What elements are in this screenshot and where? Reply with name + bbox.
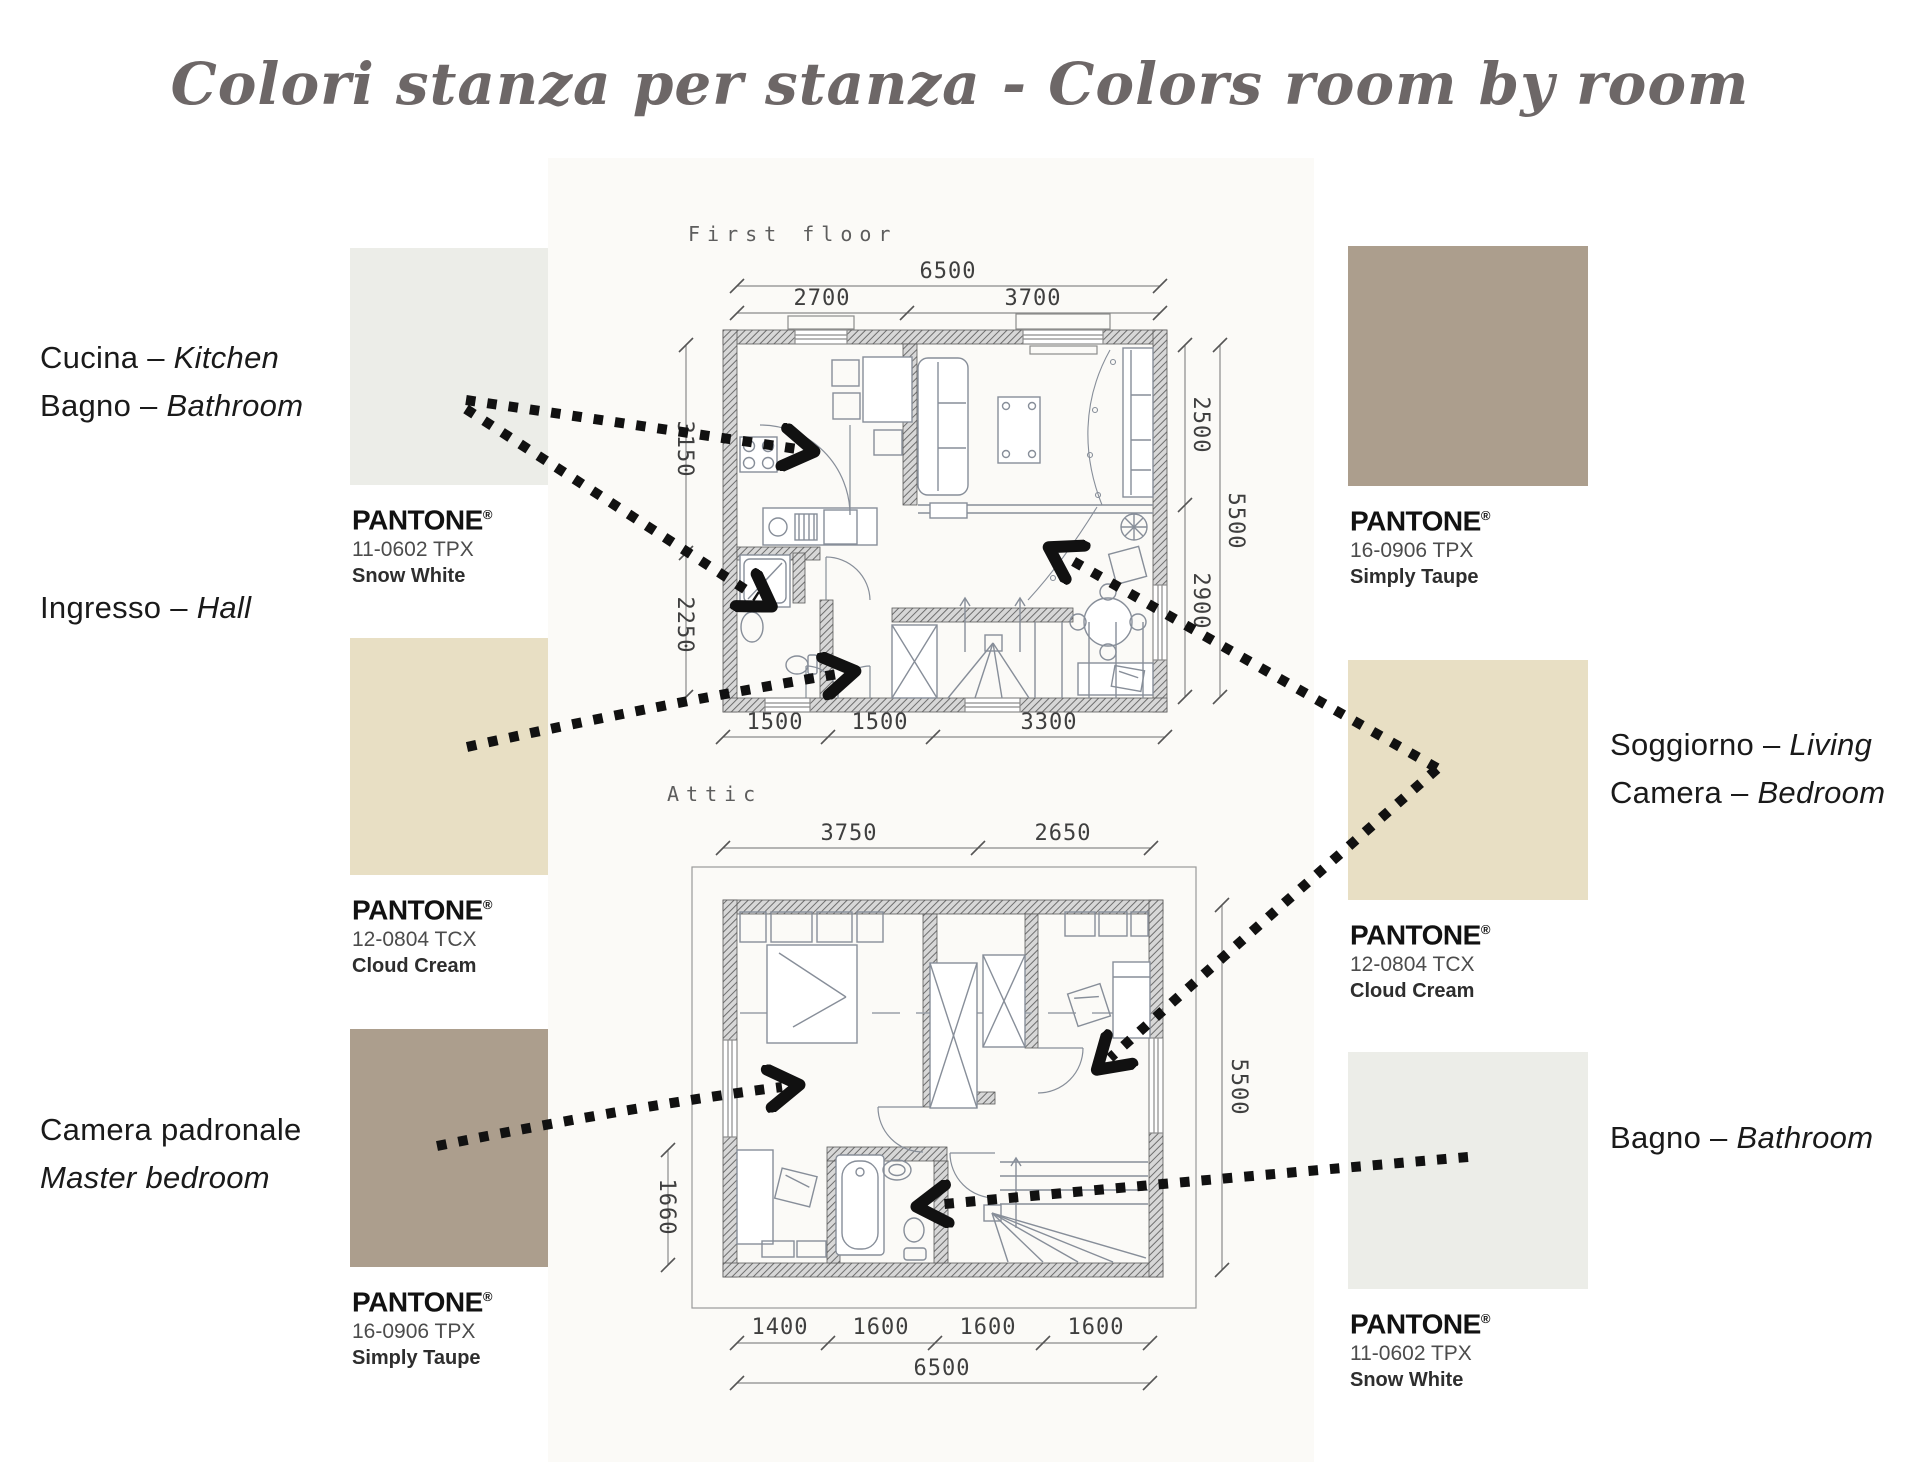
pantone-brand: PANTONE®: [1350, 1304, 1588, 1339]
page-title: Colori stanza per stanza - Colors room b…: [0, 50, 1920, 118]
annotation-arrows: [437, 400, 1468, 1205]
pantone-code: 11-0602 TPX: [352, 538, 588, 562]
dim-attic-bottom-3: 1600: [960, 1315, 1017, 1340]
first-floor-windows: [765, 314, 1167, 712]
label-living-bedroom: Soggiorno – Living Camera – Bedroom: [1610, 721, 1885, 817]
pantone-name: Snow White: [1350, 1368, 1588, 1392]
dim-first-right-total: 5500: [1223, 493, 1248, 550]
color-chip-snow-white: [350, 248, 588, 485]
dim-attic-right: 5500: [1226, 1059, 1251, 1116]
dimension-ticks: [679, 279, 1227, 744]
label-bathroom-attic: Bagno – Bathroom: [1610, 1114, 1873, 1162]
swatch-card-simply-taupe-left: PANTONE® 16-0906 TPX Simply Taupe: [350, 1029, 588, 1370]
label-line: Bagno – Bathroom: [1610, 1114, 1873, 1162]
dimension-ticks: [661, 841, 1229, 1390]
chair-icon: [775, 1168, 817, 1207]
shelves-icon: [1065, 912, 1148, 936]
color-chip-simply-taupe: [350, 1029, 588, 1267]
pantone-name: Cloud Cream: [1350, 979, 1588, 1003]
color-chip-cloud-cream: [350, 638, 588, 875]
attic-furniture: [737, 912, 1150, 1262]
label-line: Camera – Bedroom: [1610, 769, 1885, 817]
chair-icon: [1068, 984, 1111, 1027]
headboard-shelves-icon: [740, 912, 883, 942]
label-line: Master bedroom: [40, 1154, 302, 1202]
curtain-arc: [1028, 350, 1116, 600]
pantone-brand: PANTONE®: [352, 500, 588, 535]
dim-first-left-upper: 3150: [672, 421, 697, 478]
sideboard-icon: [918, 503, 1153, 518]
dim-first-bottom-1: 1500: [747, 710, 804, 735]
stairs-first-floor: [892, 598, 1143, 698]
dim-attic-total: 6500: [914, 1356, 971, 1381]
pantone-code: 11-0602 TPX: [1350, 1342, 1588, 1366]
dim-attic-bottom-2: 1600: [853, 1315, 910, 1340]
pantone-code: 12-0804 TCX: [352, 928, 588, 952]
attic-plan: Attic 3750 2650 1660 5500 1400 1600 1600…: [654, 782, 1251, 1390]
attic-walls: [723, 900, 1163, 1277]
double-bed-icon: [767, 945, 857, 1043]
dim-attic-top-1: 3750: [821, 821, 878, 846]
chair-icon: [1109, 546, 1147, 584]
swatch-card-snow-white-right: PANTONE® 11-0602 TPX Snow White: [1348, 1052, 1588, 1392]
attic-roof-outline: [692, 867, 1196, 1308]
pantone-brand: PANTONE®: [1350, 501, 1588, 536]
label-kitchen-bathroom: Cucina – Kitchen Bagno – Bathroom: [40, 334, 303, 430]
kitchen-counter-icon: [763, 508, 877, 545]
label-line: Cucina – Kitchen: [40, 334, 303, 382]
sofa-icon: [918, 358, 968, 495]
color-chip-snow-white: [1348, 1052, 1588, 1289]
pantone-code: 16-0906 TPX: [352, 1320, 588, 1344]
attic-windows: [723, 1038, 1163, 1137]
attic-label: Attic: [667, 782, 762, 806]
dim-attic-bottom-4: 1600: [1068, 1315, 1125, 1340]
first-floor-dimension-lines: [686, 286, 1220, 737]
dim-first-right-lower: 2900: [1188, 573, 1213, 630]
color-chip-simply-taupe: [1348, 246, 1588, 486]
dim-attic-left: 1660: [654, 1179, 679, 1236]
sink-icon: [883, 1160, 911, 1180]
first-floor-plan: First floor 6500 2700 3700 3150 2250 250…: [672, 222, 1248, 744]
dim-attic-top-2: 2650: [1035, 821, 1092, 846]
label-hall: Ingresso – Hall: [40, 584, 251, 632]
pantone-brand: PANTONE®: [1350, 915, 1588, 950]
swatch-card-snow-white-left: PANTONE® 11-0602 TPX Snow White: [350, 248, 588, 588]
pantone-name: Simply Taupe: [1350, 565, 1588, 589]
shower-icon: [740, 555, 790, 607]
label-line: Bagno – Bathroom: [40, 382, 303, 430]
stairs-attic: [984, 1158, 1148, 1262]
plant-icon: [1121, 514, 1147, 540]
label-line: Ingresso – Hall: [40, 584, 251, 632]
dim-first-left-lower: 2250: [672, 597, 697, 654]
wall-unit-icon: [1123, 348, 1153, 497]
pantone-code: 12-0804 TCX: [1350, 953, 1588, 977]
stove-icon: [740, 437, 777, 472]
attic-dimension-lines: [668, 848, 1222, 1383]
scan-paper-background: [548, 158, 1314, 1462]
pantone-brand: PANTONE®: [352, 890, 588, 925]
pantone-brand: PANTONE®: [352, 1282, 588, 1317]
bathtub-icon: [836, 1155, 884, 1255]
dim-attic-bottom-1: 1400: [752, 1315, 809, 1340]
toilet-icon: [904, 1218, 926, 1260]
infographic-page: { "title": "Colori stanza per stanza - C…: [0, 0, 1920, 1483]
dim-first-living-width: 3700: [1005, 286, 1062, 311]
pantone-name: Simply Taupe: [352, 1346, 588, 1370]
first-floor-label: First floor: [688, 222, 897, 246]
pantone-code: 16-0906 TPX: [1350, 539, 1588, 563]
swatch-card-cloud-cream-right: PANTONE® 12-0804 TCX Cloud Cream: [1348, 660, 1588, 1003]
dim-first-bottom-3: 3300: [1021, 710, 1078, 735]
door-arc: [878, 1048, 1083, 1198]
dim-first-right-upper: 2500: [1188, 397, 1213, 454]
sink-icon: [741, 612, 763, 642]
first-floor-walls: [723, 330, 1167, 712]
pantone-name: Snow White: [352, 564, 588, 588]
dresser-icon: [737, 1150, 826, 1257]
swatch-card-simply-taupe-right: PANTONE® 16-0906 TPX Simply Taupe: [1348, 246, 1588, 589]
label-master-bedroom: Camera padronale Master bedroom: [40, 1106, 302, 1202]
color-chip-cloud-cream: [1348, 660, 1588, 900]
dim-first-bottom-2: 1500: [852, 710, 909, 735]
label-line: Soggiorno – Living: [1610, 721, 1885, 769]
single-bed-icon: [1113, 962, 1150, 1038]
first-floor-furniture: [740, 348, 1153, 698]
label-line: Camera padronale: [40, 1106, 302, 1154]
coffee-table-icon: [998, 397, 1040, 463]
toilet-icon: [786, 655, 817, 674]
round-table-icon: [1070, 584, 1146, 660]
kitchen-table-icon: [832, 357, 912, 455]
swatch-card-cloud-cream-left: PANTONE® 12-0804 TCX Cloud Cream: [350, 638, 588, 978]
pantone-name: Cloud Cream: [352, 954, 588, 978]
wardrobe-icon: [930, 955, 1025, 1108]
dim-first-kitchen-width: 2700: [794, 286, 851, 311]
door-arc: [760, 425, 870, 698]
dim-first-total-width: 6500: [920, 259, 977, 284]
desk-icon: [1078, 663, 1153, 695]
